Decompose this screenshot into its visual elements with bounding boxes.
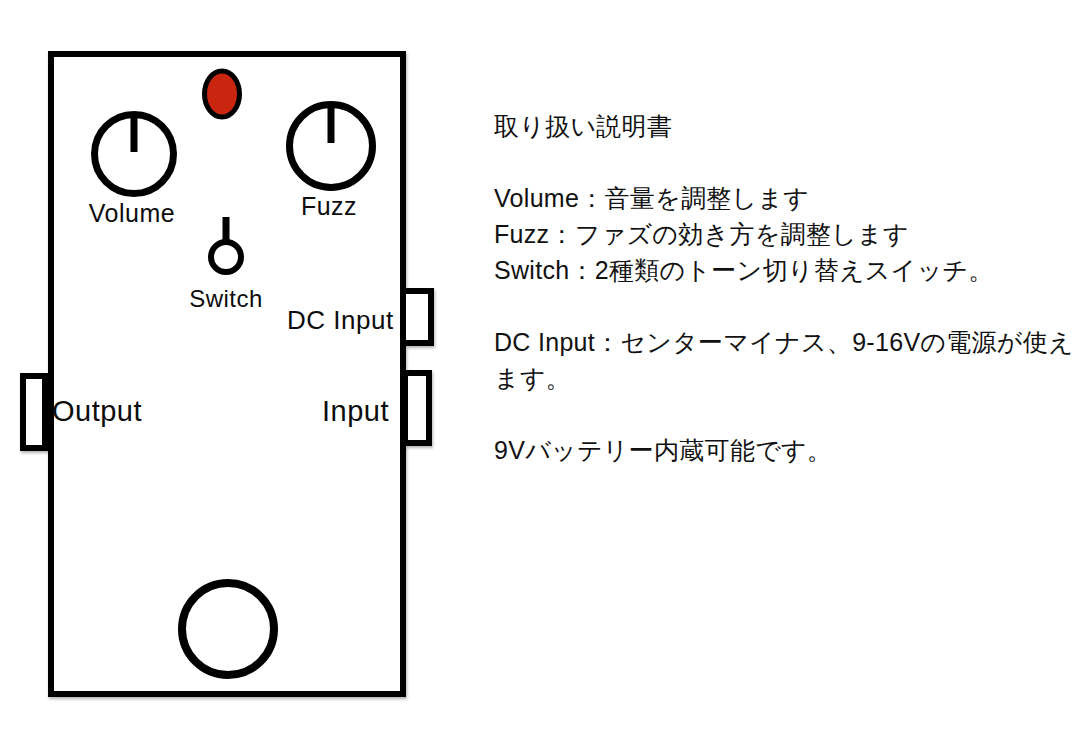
- switch-label: Switch: [189, 285, 263, 313]
- instruction-volume: Volume：音量を調整します: [494, 180, 1064, 216]
- footswitch: [182, 583, 274, 675]
- instruction-dc-line2: ます。: [494, 360, 1064, 396]
- fuzz-label: Fuzz: [301, 192, 357, 221]
- instruction-blank: [494, 288, 1064, 324]
- instruction-switch: Switch：2種類のトーン切り替えスイッチ。: [494, 252, 1064, 288]
- instruction-battery: 9Vバッテリー内蔵可能です。: [494, 432, 1064, 468]
- dc-input-label: DC Input: [287, 305, 394, 336]
- dc-input-jack: [403, 291, 431, 343]
- instruction-dc-line1: DC Input：センターマイナス、9-16Vの電源が使え: [494, 324, 1064, 360]
- instruction-text: 取り扱い説明書 Volume：音量を調整します Fuzz：ファズの効き方を調整し…: [494, 108, 1064, 468]
- manual-page: Volume Fuzz Switch DC Input Output Input…: [0, 0, 1080, 753]
- output-jack: [23, 376, 45, 448]
- instruction-blank: [494, 396, 1064, 432]
- pedal-diagram: [0, 0, 460, 753]
- instruction-blank: [494, 144, 1064, 180]
- input-jack: [405, 373, 429, 443]
- instruction-title: 取り扱い説明書: [494, 108, 1064, 144]
- led-indicator: [205, 71, 240, 117]
- instruction-fuzz: Fuzz：ファズの効き方を調整します: [494, 216, 1064, 252]
- input-label: Input: [322, 395, 389, 428]
- output-label: Output: [52, 395, 142, 428]
- volume-label: Volume: [89, 199, 175, 228]
